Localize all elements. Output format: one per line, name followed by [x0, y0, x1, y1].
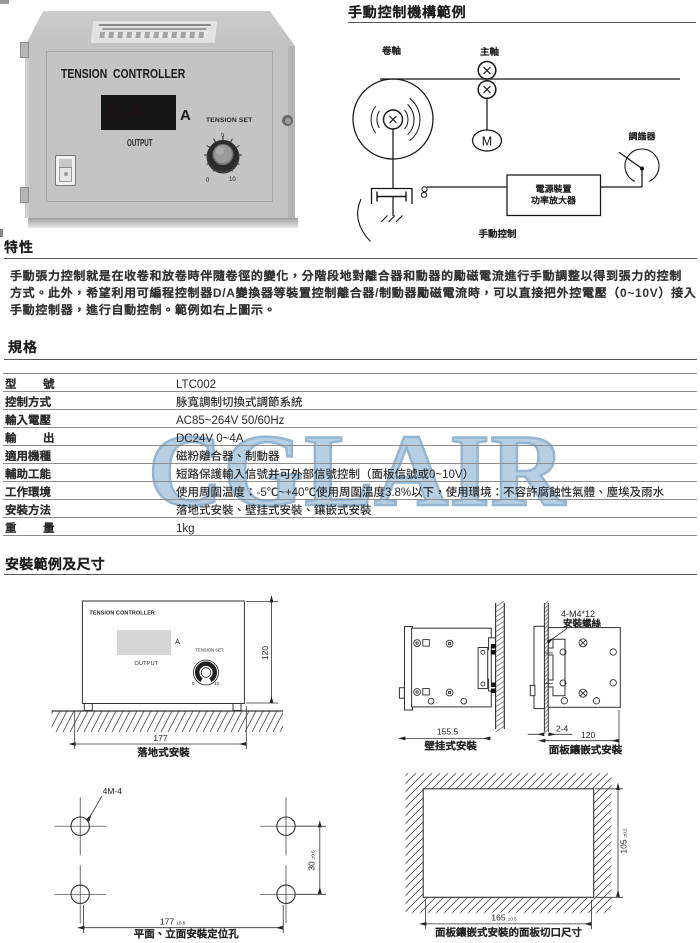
- svg-text:4M-4: 4M-4: [103, 785, 123, 797]
- svg-text:10: 10: [229, 174, 236, 183]
- svg-text:主軸: 主軸: [480, 44, 500, 58]
- svg-text:調諧器: 調諧器: [628, 130, 655, 143]
- svg-text:120: 120: [581, 729, 595, 741]
- svg-text:120: 120: [259, 646, 271, 660]
- svg-text:0: 0: [206, 175, 210, 184]
- svg-text:落地式安裝: 落地式安裝: [137, 745, 190, 760]
- svg-text:5: 5: [221, 133, 225, 139]
- svg-text:平面、立面安裝定位孔: 平面、立面安裝定位孔: [134, 927, 239, 942]
- svg-text:2-4: 2-4: [556, 723, 569, 735]
- svg-text:安裝螺絲: 安裝螺絲: [563, 616, 602, 630]
- svg-text:手動控制: 手動控制: [478, 226, 517, 240]
- svg-text:105 ±0.5: 105 ±0.5: [618, 828, 630, 854]
- svg-text:TENSION CONTROLLER: TENSION CONTROLLER: [89, 609, 155, 617]
- svg-text:面板鑲嵌式安裝的面板切口尺寸: 面板鑲嵌式安裝的面板切口尺寸: [435, 925, 582, 940]
- svg-text:OUTPUT: OUTPUT: [135, 659, 159, 667]
- svg-text:177: 177: [153, 732, 167, 744]
- svg-text:0: 0: [192, 681, 195, 687]
- svg-text:壁挂式安裝: 壁挂式安裝: [423, 739, 477, 754]
- svg-text:10: 10: [214, 681, 220, 687]
- svg-text:面板鑲嵌式安裝: 面板鑲嵌式安裝: [549, 743, 623, 758]
- svg-text:M: M: [482, 131, 492, 150]
- svg-text:165 ±0.5: 165 ±0.5: [491, 912, 517, 924]
- svg-text:155.5: 155.5: [437, 726, 459, 738]
- svg-text:TENSION SET: TENSION SET: [196, 648, 224, 654]
- svg-text:功率放大器: 功率放大器: [531, 194, 576, 207]
- svg-text:卷軸: 卷軸: [381, 43, 402, 57]
- svg-text:A: A: [175, 636, 180, 647]
- svg-text:30 ±0.5: 30 ±0.5: [306, 850, 318, 871]
